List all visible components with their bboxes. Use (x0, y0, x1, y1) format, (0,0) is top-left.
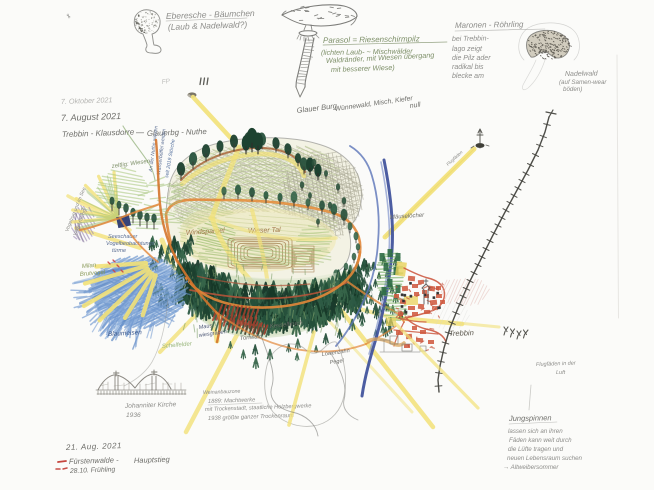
svg-text:türme: türme (112, 248, 126, 254)
svg-text:radikal bis: radikal bis (452, 64, 484, 71)
svg-text:Nadelwald: Nadelwald (565, 70, 599, 78)
svg-text:böden): böden) (563, 86, 582, 93)
svg-text:Fäden kann weit durch: Fäden kann weit durch (509, 437, 572, 444)
svg-text:(auf Samen-wear: (auf Samen-wear (559, 79, 607, 86)
svg-text:—: — (135, 128, 145, 137)
svg-text:lago zeigt: lago zeigt (452, 46, 483, 53)
svg-text:7. Oktober 2021: 7. Oktober 2021 (61, 95, 113, 106)
svg-text:Parasol = Riesenschirmpilz: Parasol = Riesenschirmpilz (323, 34, 420, 45)
svg-text:FP: FP (161, 78, 171, 86)
svg-text:die Lüfte tragen und: die Lüfte tragen und (508, 446, 564, 453)
svg-text:blecke am: blecke am (452, 73, 484, 80)
svg-text:7. August 2021: 7. August 2021 (61, 111, 122, 123)
svg-text:Trebbin: Trebbin (449, 328, 474, 338)
svg-text:lassen sich an ihren: lassen sich an ihren (508, 428, 563, 435)
svg-text:→ Altweibersommer: → Altweibersommer (503, 464, 559, 471)
svg-text:1936: 1936 (126, 412, 141, 419)
svg-text:die Pilz ader: die Pilz ader (452, 55, 491, 62)
svg-text:Maronen - Röhrling: Maronen - Röhrling (455, 20, 524, 30)
svg-text:bei Trebbin-: bei Trebbin- (452, 35, 490, 43)
svg-text:Fürstenwalde -: Fürstenwalde - (69, 455, 119, 466)
svg-text:neuen Lebensraum suchen: neuen Lebensraum suchen (507, 455, 583, 462)
svg-text:Luft: Luft (556, 370, 566, 376)
svg-text:Hauptstieg: Hauptstieg (134, 455, 171, 465)
svg-text:Vogelbeobachtungs: Vogelbeobachtungs (106, 241, 155, 247)
svg-text:Jungspinnen: Jungspinnen (508, 413, 552, 423)
